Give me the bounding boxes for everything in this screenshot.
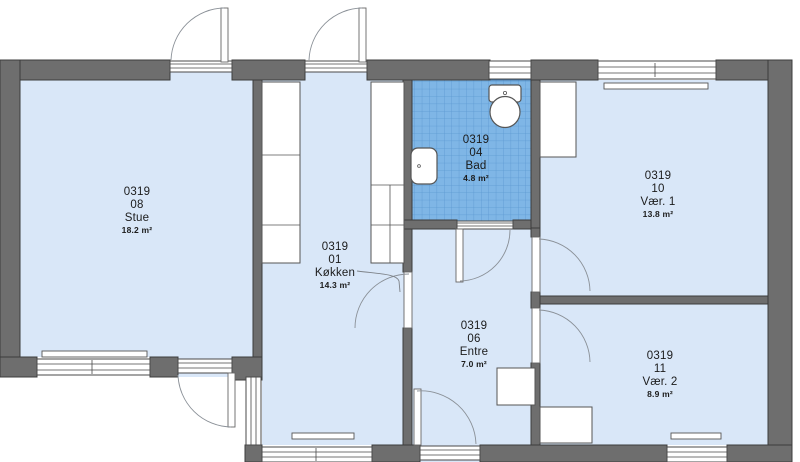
stue-entry-sill (170, 61, 232, 72)
exterior-wall-top (0, 60, 170, 80)
exterior-wall-top (367, 60, 490, 80)
wall-koekken-entre (403, 328, 412, 445)
stue-bottom-wall (0, 357, 37, 377)
room-name: Entre (414, 346, 534, 359)
bottom-wall (372, 445, 420, 462)
room-name: Stue (77, 212, 197, 225)
room-id: 0319 (77, 186, 197, 199)
entre-wardrobe (497, 368, 535, 405)
room-area: 13.8 m² (598, 209, 718, 220)
room-id: 0319 (275, 241, 395, 254)
stue-entry-door (171, 8, 228, 62)
vaer2-wardrobe (540, 407, 592, 443)
bottom-wall (245, 445, 262, 462)
room-name: Vær. 2 (600, 376, 720, 389)
floor-plan: 0319 08 Stue 18.2 m² 0319 01 Køkken 14.3… (0, 0, 800, 462)
toilet (489, 85, 521, 128)
room-number: 04 (416, 147, 536, 160)
exterior-wall-left (0, 60, 20, 377)
room-label-koekken: 0319 01 Køkken 14.3 m² (275, 241, 395, 291)
bottom-wall (727, 445, 792, 462)
room-area: 4.8 m² (416, 173, 536, 184)
bad-window (489, 61, 531, 79)
room-label-bad: 0319 04 Bad 4.8 m² (416, 134, 536, 184)
koekken-counter-right (371, 82, 404, 263)
stue-garden-door-sill (178, 359, 232, 373)
room-label-entre: 0319 06 Entre 7.0 m² (414, 320, 534, 370)
koekken-entry-sill (305, 61, 367, 72)
wall-stue-koekken (253, 80, 262, 357)
room-area: 14.3 m² (275, 280, 395, 291)
stue-radiator (42, 351, 147, 357)
koekken-entry-door (309, 8, 366, 62)
koekken-counter-left (262, 82, 300, 263)
room-number: 10 (598, 183, 718, 196)
bottom-wall (480, 445, 667, 462)
room-number: 06 (414, 333, 534, 346)
vaer1-wardrobe (540, 82, 576, 157)
vaer2-window (667, 447, 727, 462)
room-number: 08 (77, 199, 197, 212)
stue-garden-door (178, 373, 235, 427)
exterior-wall-right (768, 60, 792, 462)
room-name: Vær. 1 (598, 196, 718, 209)
bad-door-sill (457, 221, 513, 229)
room-area: 8.9 m² (600, 389, 720, 400)
room-number: 11 (600, 363, 720, 376)
vaer1-window (598, 61, 716, 79)
room-name: Køkken (275, 267, 395, 280)
room-id: 0319 (600, 350, 720, 363)
stue-window (37, 359, 150, 375)
room-id: 0319 (598, 170, 718, 183)
step-window (246, 377, 261, 445)
stue-bottom-wall (150, 357, 178, 377)
room-area: 18.2 m² (77, 225, 197, 236)
front-door-sill (420, 446, 480, 460)
room-number: 01 (275, 254, 395, 267)
room-id: 0319 (416, 134, 536, 147)
room-area: 7.0 m² (414, 359, 534, 370)
room-label-vaer1: 0319 10 Vær. 1 13.8 m² (598, 170, 718, 220)
wall-vaer1-vaer2 (540, 296, 768, 304)
wall-entre-pier (531, 292, 540, 308)
wall-entre-vaer1 (531, 228, 540, 237)
koekken-radiator (292, 433, 354, 439)
room-id: 0319 (414, 320, 534, 333)
vaer1-radiator (604, 83, 708, 89)
wall-bad-bottom (404, 220, 457, 229)
exterior-wall-top (531, 60, 598, 80)
vaer2-radiator (671, 433, 721, 439)
exterior-wall-top (232, 60, 305, 80)
koekken-window (262, 447, 372, 462)
room-name: Bad (416, 160, 536, 173)
room-label-vaer2: 0319 11 Vær. 2 8.9 m² (600, 350, 720, 400)
room-label-stue: 0319 08 Stue 18.2 m² (77, 186, 197, 236)
